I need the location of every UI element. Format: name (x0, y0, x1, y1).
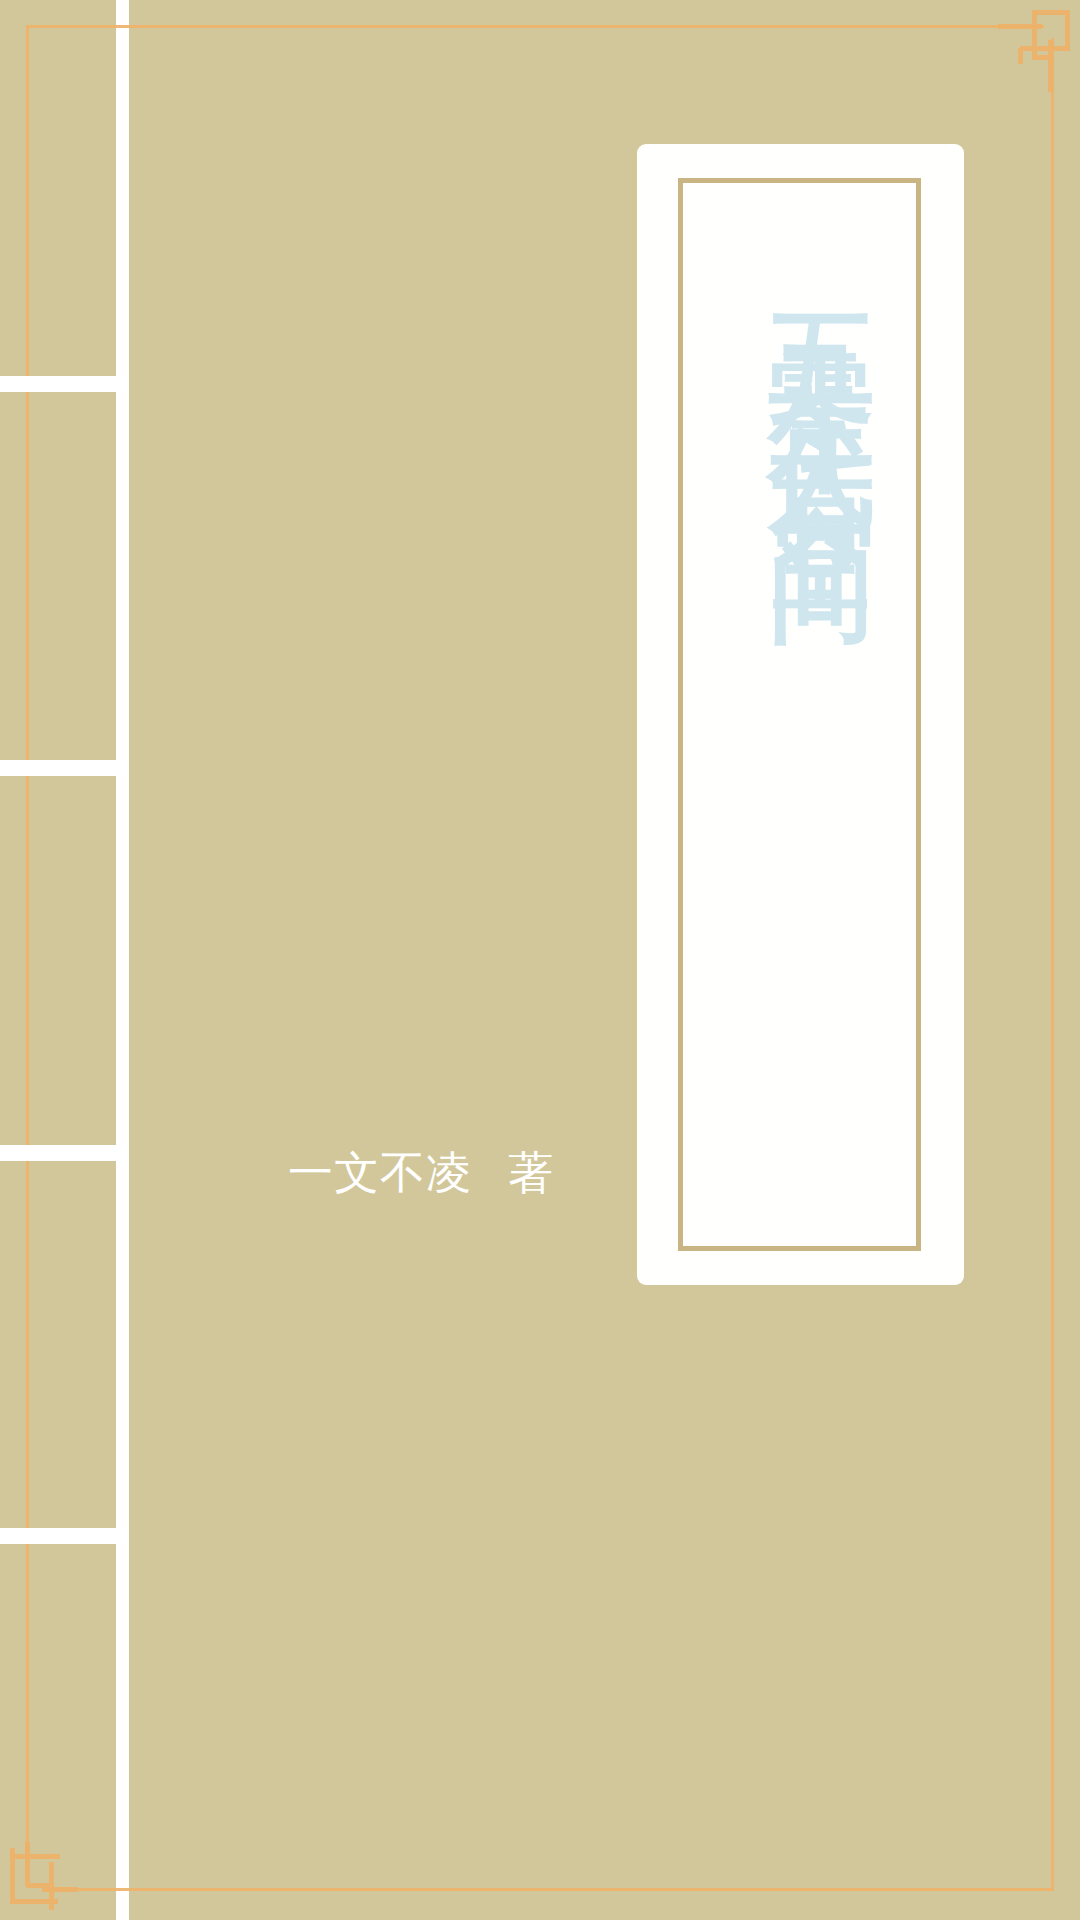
spine-gap (0, 376, 118, 392)
spine-gap (0, 1528, 118, 1544)
border-frame-top (26, 25, 1044, 28)
spine-divider (116, 0, 129, 1920)
fret-corner-icon-top-right (998, 0, 1076, 92)
title-panel: 五零年代有空间 (637, 144, 964, 1285)
author-suffix: 著 (508, 1148, 554, 1198)
author-name: 一文不凌 (288, 1147, 472, 1198)
spine-gap (0, 760, 118, 776)
border-frame-right (1051, 38, 1054, 1891)
spine-gap (0, 1145, 118, 1161)
book-cover: 五零年代有空间 一文不凌著 (0, 0, 1080, 1920)
book-title: 五零年代有空间 (768, 232, 878, 491)
border-frame-bottom (46, 1888, 1054, 1891)
border-frame-left (26, 25, 29, 1861)
author-line: 一文不凌著 (288, 1148, 554, 1198)
fret-corner-icon-bottom-left (2, 1842, 78, 1912)
